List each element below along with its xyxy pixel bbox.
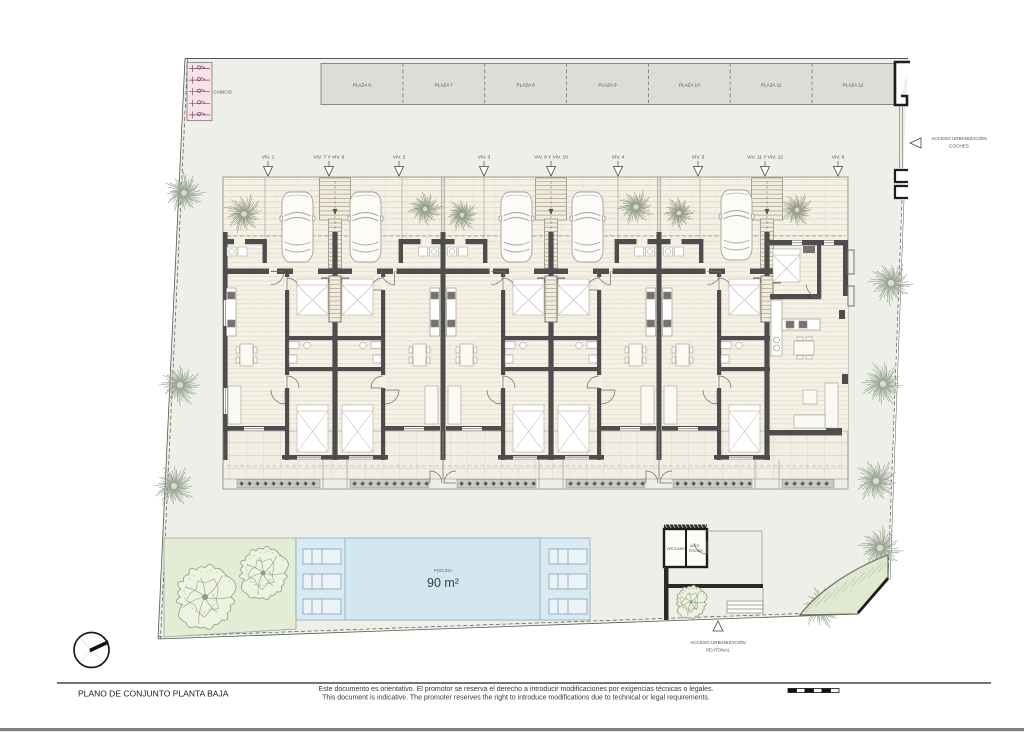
svg-text:PLANO DE CONJUNTO PLANTA BAJA: PLANO DE CONJUNTO PLANTA BAJA <box>78 689 229 699</box>
svg-text:PEATONAL: PEATONAL <box>706 648 731 653</box>
svg-text:PLAZA 8: PLAZA 8 <box>517 83 536 88</box>
svg-text:PLAZA 11: PLAZA 11 <box>761 83 782 88</box>
svg-text:VIV. 9 Y VIV. 10: VIV. 9 Y VIV. 10 <box>534 155 568 161</box>
svg-text:VIV. 6: VIV. 6 <box>832 155 845 161</box>
svg-text:PLAZA 12: PLAZA 12 <box>843 83 864 88</box>
svg-text:VIV. 11 Y VIV. 12: VIV. 11 Y VIV. 12 <box>747 155 783 161</box>
svg-text:VIV. 1: VIV. 1 <box>262 155 275 161</box>
svg-text:This document is indicative. T: This document is indicative. The promote… <box>322 695 710 702</box>
svg-text:VESTUARIO: VESTUARIO <box>667 547 686 551</box>
svg-text:VIV. 2: VIV. 2 <box>393 155 406 161</box>
svg-text:ACCESO URBANIZACIÓN: ACCESO URBANIZACIÓN <box>931 135 986 141</box>
svg-text:PISCINA: PISCINA <box>434 568 453 573</box>
svg-text:Este documento es orientativo.: Este documento es orientativo. El promot… <box>319 686 714 693</box>
svg-text:ACCESO URBANIZACIÓN: ACCESO URBANIZACIÓN <box>690 639 745 645</box>
svg-text:VIV. 3: VIV. 3 <box>478 155 491 161</box>
svg-text:PLAZA 6: PLAZA 6 <box>353 83 372 88</box>
svg-text:ASEO: ASEO <box>690 544 700 548</box>
svg-text:PLAZA 10: PLAZA 10 <box>679 83 700 88</box>
svg-text:PLAZA 7: PLAZA 7 <box>435 83 454 88</box>
svg-text:VIV. 7 Y VIV. 8: VIV. 7 Y VIV. 8 <box>314 155 345 161</box>
svg-text:PISCINA: PISCINA <box>689 549 703 553</box>
svg-text:VIV. 4: VIV. 4 <box>612 155 625 161</box>
svg-text:COCHES: COCHES <box>949 144 969 149</box>
svg-text:VIV. 5: VIV. 5 <box>692 155 705 161</box>
svg-text:90 m²: 90 m² <box>427 576 459 590</box>
svg-text:PLAZA 9: PLAZA 9 <box>598 83 617 88</box>
svg-text:CABICIS: CABICIS <box>214 90 232 95</box>
